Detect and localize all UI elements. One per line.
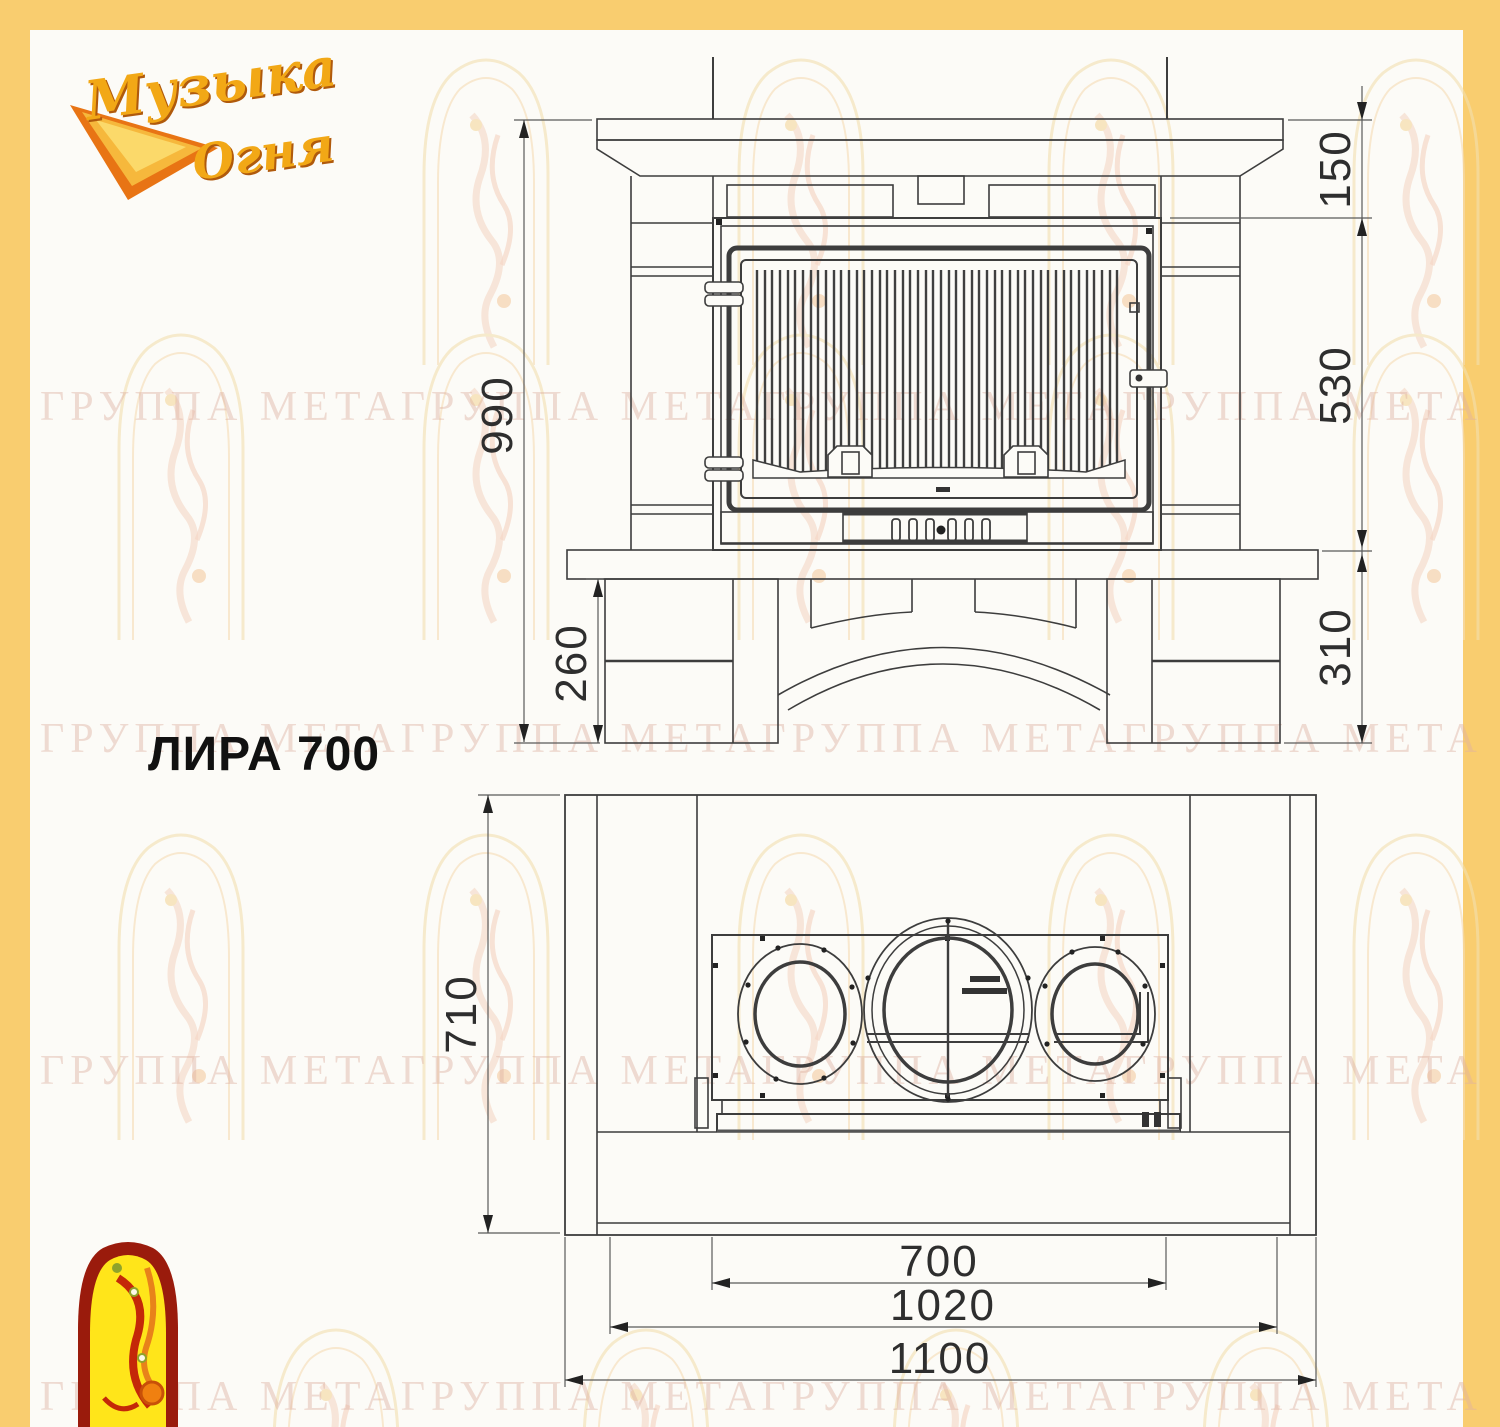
frieze-center-notch [918, 176, 964, 204]
hearth-shelf [567, 550, 1318, 579]
brand-logo: Музыка Музыка Огня Огня [70, 34, 342, 200]
dim-1020-label: 1020 [890, 1281, 996, 1330]
dim-700-label: 700 [899, 1237, 978, 1286]
dim-310-label: 310 [1311, 607, 1360, 686]
brand-word-2: Огня [189, 117, 337, 192]
base-arch [778, 579, 1110, 710]
watermark-text: ГРУППА МЕТАГРУППА МЕТАГРУППА МЕТАГРУППА … [40, 384, 1483, 430]
dim-150-label: 150 [1311, 129, 1360, 208]
firebox-grill-bars [757, 270, 1117, 472]
model-title: ЛИРА 700 [148, 728, 380, 781]
dim-260-label: 260 [547, 623, 596, 702]
watermark-text: ГРУППА МЕТАГРУППА МЕТАГРУППА МЕТАГРУППА … [40, 1048, 1483, 1094]
watermark-text: ГРУППА МЕТАГРУППА МЕТАГРУППА МЕТАГРУППА … [40, 1374, 1483, 1420]
dim-530-label: 530 [1311, 345, 1360, 424]
mantel-molding [597, 140, 1283, 176]
dim-710-label: 710 [437, 974, 486, 1053]
dim-990-label: 990 [473, 375, 522, 454]
top-view-outline [565, 795, 1316, 1235]
side-wall-lines [597, 795, 1290, 1235]
top-view [565, 795, 1316, 1235]
mantel-shelf [597, 119, 1283, 140]
watermark-text-rows: ГРУППА МЕТАГРУППА МЕТАГРУППА МЕТАГРУППА … [40, 384, 1483, 1420]
brand-word-1: Музыка [79, 34, 340, 133]
company-arch-logo [78, 1242, 178, 1427]
fireplace-technical-drawing: ГРУППА МЕТАГРУППА МЕТАГРУППА МЕТАГРУППА … [0, 0, 1500, 1427]
dim-1100-label: 1100 [889, 1334, 992, 1383]
door-hinges [705, 282, 743, 481]
insert-front-rail [717, 1114, 1180, 1131]
vent-strip [721, 512, 1153, 543]
flue-circle-middle [864, 918, 1032, 1102]
